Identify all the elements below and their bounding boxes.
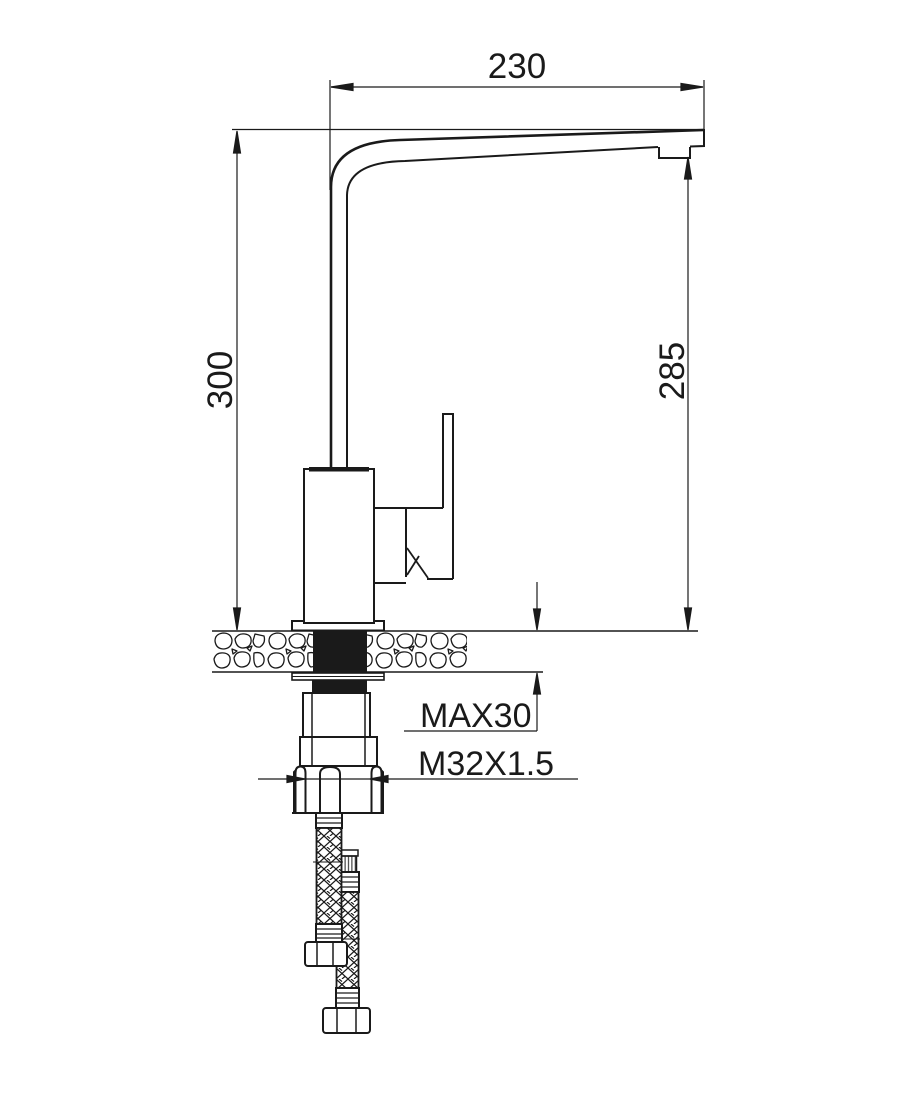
hose-right-end-nut — [323, 1008, 370, 1033]
dim-overall-height-label: 300 — [201, 351, 240, 409]
arrowhead-down — [685, 608, 692, 630]
faucet-technical-drawing: 230 300 285 MAX30 M32X1.5 — [0, 0, 922, 1099]
arrowhead-down — [234, 608, 241, 630]
dim-spout-reach: 230 — [330, 47, 704, 190]
dim-thread-size-label: M32X1.5 — [418, 745, 554, 783]
dim-spout-height-label: 285 — [653, 342, 692, 400]
handle-lever — [443, 414, 453, 579]
connection-skirt — [293, 766, 383, 813]
threaded-shank-lower — [312, 680, 367, 693]
spout-outer-edge — [331, 130, 704, 469]
dim-spout-height: 285 — [653, 157, 692, 630]
dim-spout-reach-label: 230 — [488, 47, 546, 86]
supply-hose-left — [305, 813, 347, 966]
nipple-tube-center — [320, 767, 340, 813]
arrowhead-right — [681, 84, 703, 91]
dim-overall-height: 300 — [201, 131, 241, 630]
spout-aerator — [659, 147, 690, 158]
arrowhead-up — [234, 131, 241, 153]
faucet-outline — [292, 129, 704, 631]
arrowhead-up — [685, 157, 692, 179]
hose-right-ferrule-bottom — [336, 988, 359, 1008]
countertop — [212, 631, 698, 672]
hose-left-braid — [317, 828, 342, 924]
faucet-body — [304, 469, 374, 623]
hose-left-elbow-nut — [305, 942, 347, 966]
dim-max-thickness-label: MAX30 — [420, 697, 532, 735]
spout-inner-edge — [347, 147, 658, 469]
faucet-handle — [374, 414, 453, 583]
arrowhead-down — [534, 609, 541, 630]
arrowhead-left — [331, 84, 353, 91]
threaded-shank — [313, 630, 367, 673]
mounting-nut — [300, 693, 377, 766]
hose-left-ferrule-bottom — [316, 924, 342, 942]
faucet-spout — [331, 129, 704, 469]
hose-left-ferrule-top — [316, 813, 342, 828]
faucet-body-flange — [309, 467, 369, 472]
technical-drawing-canvas: 230 300 285 MAX30 M32X1.5 — [0, 0, 922, 1099]
nipple-tube-left — [296, 767, 306, 814]
nipple-tube-right — [372, 767, 382, 814]
